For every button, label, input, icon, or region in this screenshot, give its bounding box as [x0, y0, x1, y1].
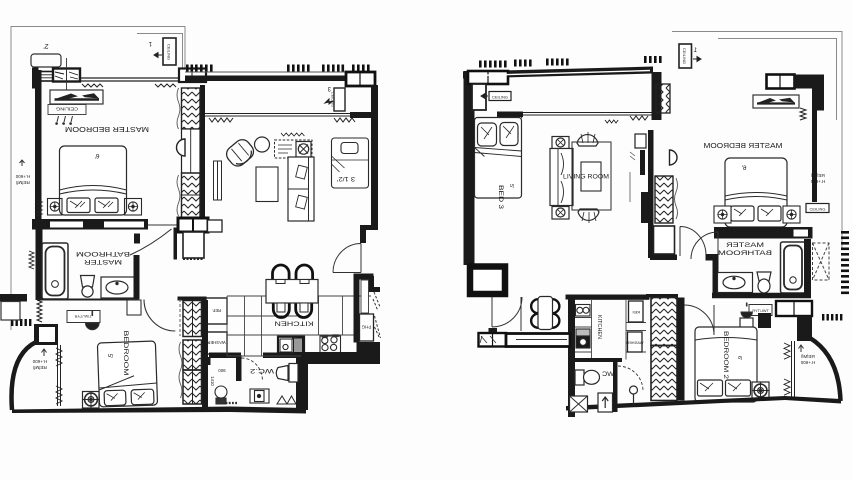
svg-text:900: 900: [218, 368, 226, 373]
svg-text:6': 6': [736, 356, 742, 360]
svg-text:KITCHEN: KITCHEN: [274, 320, 313, 327]
svg-text:BATHROOM: BATHROOM: [718, 250, 772, 257]
svg-text:MASTER: MASTER: [726, 242, 764, 249]
svg-text:CEILING: CEILING: [331, 92, 335, 107]
svg-text:H.+600: H.+600: [15, 174, 30, 179]
svg-text:REF.: REF.: [212, 308, 221, 313]
svg-text:REfMfl: REfMfl: [801, 354, 815, 359]
svg-text:1410: 1410: [210, 376, 215, 386]
svg-text:MASTER BEDROOM: MASTER BEDROOM: [703, 141, 782, 150]
svg-text:CEILING: CEILING: [682, 48, 687, 64]
svg-text:BEDROOM 2: BEDROOM 2: [722, 331, 728, 380]
svg-text:CEILING: CEILING: [167, 44, 172, 60]
svg-text:CEILING: CEILING: [492, 95, 508, 100]
svg-text:BEDROOM: BEDROOM: [122, 331, 129, 376]
svg-text:KITCHEN: KITCHEN: [596, 315, 602, 339]
svg-text:REfMfl: REfMfl: [33, 365, 47, 370]
svg-text:H.+600: H.+600: [800, 360, 815, 365]
svg-text:REfMfl: REfMfl: [811, 173, 825, 178]
svg-text:5': 5': [106, 354, 112, 358]
svg-text:WC.2: WC.2: [249, 367, 274, 373]
svg-text:6': 6': [95, 152, 100, 159]
svg-text:6': 6': [742, 165, 747, 172]
svg-text:BATHROOM: BATHROOM: [76, 250, 130, 257]
svg-text:TWL/TYR: TWL/TYR: [752, 309, 769, 313]
svg-text:WASHER: WASHER: [207, 340, 225, 345]
svg-text:H.+600: H.+600: [810, 179, 825, 184]
svg-text:3 1/2': 3 1/2': [337, 175, 355, 181]
svg-text:MASTER BEDROOM: MASTER BEDROOM: [65, 125, 149, 134]
svg-text:WC: WC: [601, 372, 614, 378]
svg-text:REF.: REF.: [631, 310, 640, 315]
svg-text:H.+600: H.+600: [32, 359, 47, 364]
svg-text:TWL/TYR: TWL/TYR: [74, 314, 91, 318]
svg-text:5': 5': [508, 184, 514, 188]
svg-text:2': 2': [43, 42, 48, 49]
svg-text:WASHER: WASHER: [626, 340, 644, 345]
svg-text:LIVING ROOM: LIVING ROOM: [563, 174, 609, 181]
svg-text:CEILING: CEILING: [56, 107, 78, 112]
svg-text:PHG: PHG: [361, 325, 371, 330]
svg-text:REfMfl: REfMfl: [16, 180, 30, 185]
svg-text:MASTER: MASTER: [84, 258, 122, 265]
svg-text:CEILING: CEILING: [809, 207, 825, 212]
svg-text:BED 3: BED 3: [497, 185, 503, 210]
